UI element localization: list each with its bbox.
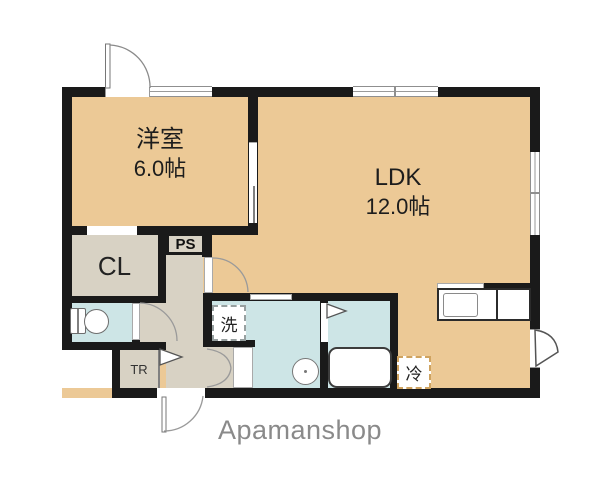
western-room-label: 洋室 6.0帖 [80,125,240,183]
balcony-door-arc [110,45,150,88]
ldk-area: 12.0帖 [318,193,478,221]
hallway-toilet-vestibule [140,303,166,342]
washroom-pass-opening [250,294,292,300]
kitchen-counter-divider [496,289,498,320]
wall-closet-right [158,235,166,303]
wall-toilet-bottom [62,342,166,350]
bathtub [328,347,392,388]
wall-trunk-right-line [158,350,160,388]
western-window [150,86,212,97]
brand-logo-text: Apamanshop [150,415,450,446]
toilet-bowl [84,309,109,334]
wall-washroom-inner [203,340,255,347]
washing-machine-space: 洗 [212,305,246,341]
western-room-name: 洋室 [80,125,240,155]
hallway-exterior-doorway [157,388,205,398]
pipe-space: PS [166,233,205,255]
trunk-room-label: TR [120,357,158,381]
bathroom-doorway [321,303,328,342]
kitchen-sink [443,293,478,317]
hallway-pocket [203,347,233,388]
washing-machine-label: 洗 [221,311,238,336]
toilet-door-panel [132,303,140,340]
ldk-right-window-tick [531,192,539,194]
western-ldk-sliding-panel [253,186,255,223]
refrigerator-space: 冷 [397,356,431,389]
ldk-name: LDK [318,163,478,193]
hallway-floor [166,255,203,388]
floor-plan: PS 冷 洗 洋室 6.0帖 [0,0,600,480]
refrigerator-label: 冷 [406,360,423,385]
pipe-space-label: PS [175,236,195,253]
wall-closet-bottom [62,296,166,303]
closet-label: CL [71,240,158,292]
closet-opening [87,226,137,235]
toilet-tank-divider [77,309,79,333]
wall-washroom-top [203,293,398,301]
ldk-hall-door-panel [204,257,213,293]
wall-washroom-left [203,293,212,347]
outside-notch [50,350,112,388]
western-room-area: 6.0帖 [80,155,240,183]
ldk-label: LDK 12.0帖 [318,163,478,221]
balcony-door-leaf [106,44,111,88]
western-balcony-doorway [105,87,150,97]
entry-doorway-right [530,329,540,368]
wall-trunk-left [112,350,120,398]
ldk-top-window-tick [394,87,396,96]
wash-basin-drain [304,370,307,373]
washroom-door-panel [233,347,253,388]
